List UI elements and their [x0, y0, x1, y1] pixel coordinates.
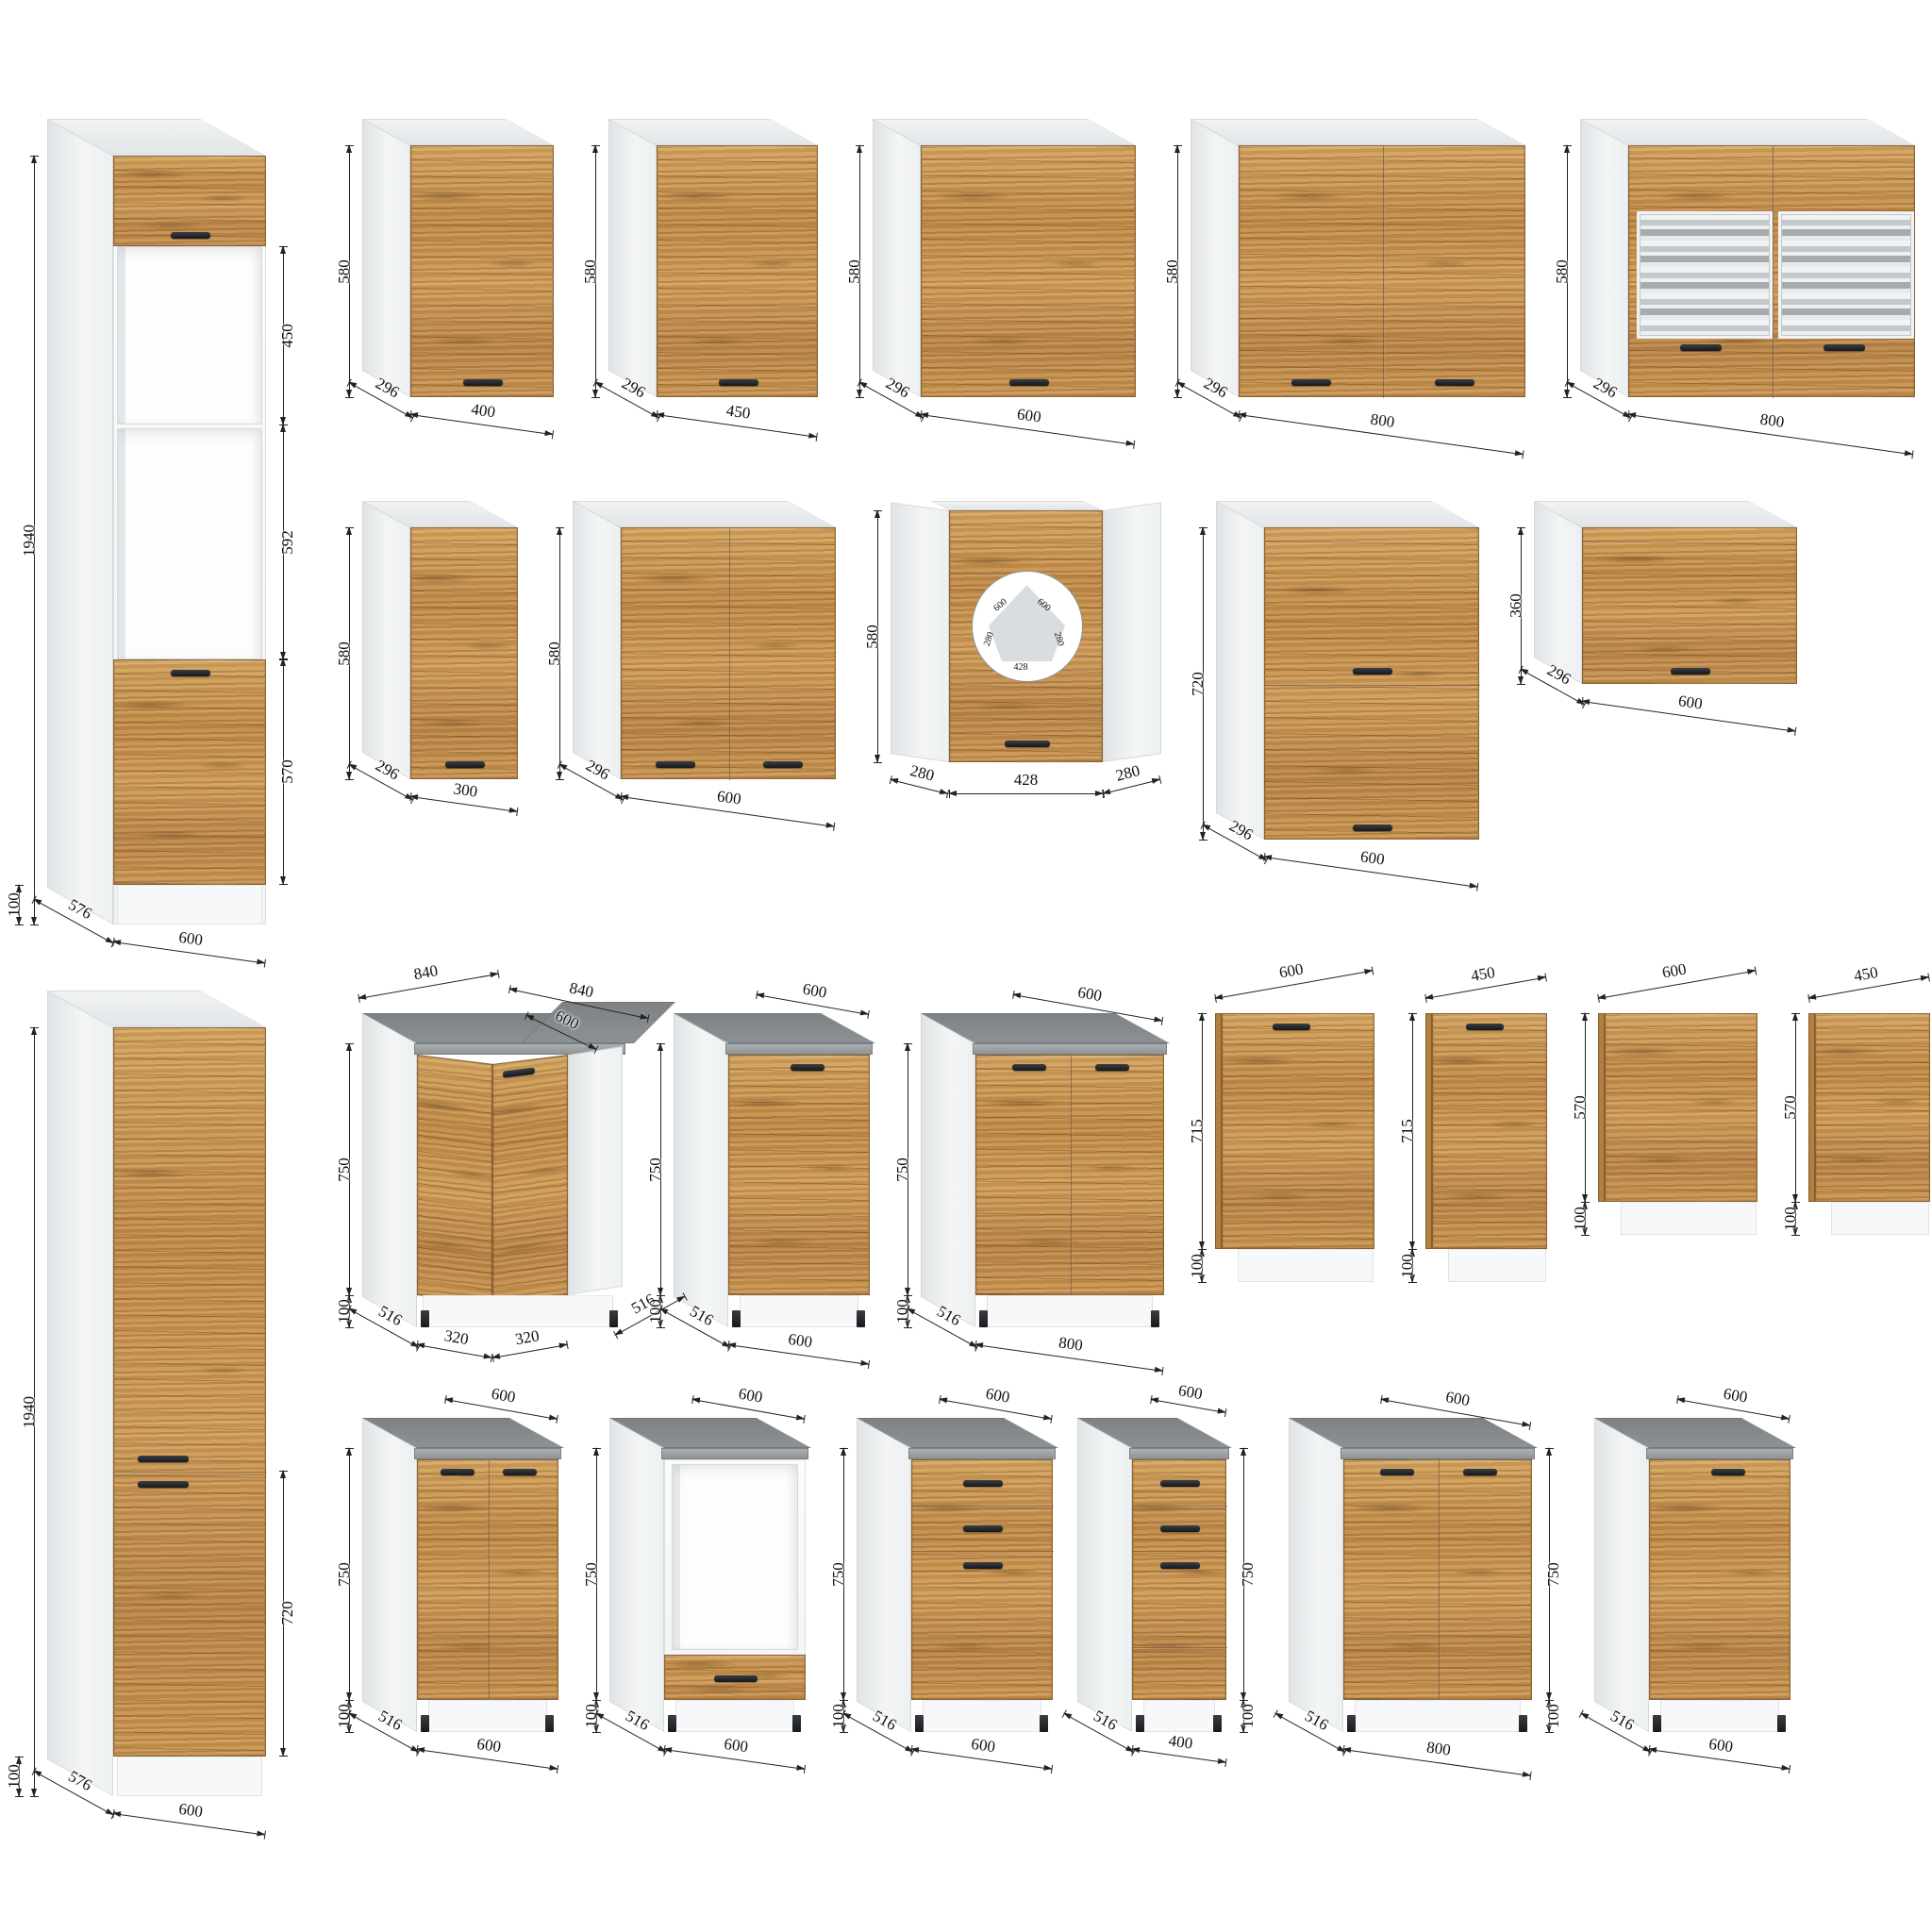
dimension-label: 600: [970, 1735, 996, 1757]
dimension-label: 100: [5, 892, 24, 917]
base-cabinet-600-two-door: 750100600600516: [325, 1388, 566, 1785]
cabinet-foot: [421, 1715, 429, 1732]
tick: [1563, 145, 1572, 146]
countertop-edge: [661, 1448, 808, 1459]
dimension: 600: [113, 1813, 264, 1835]
wall-units-section: 1940100450592570600576580400296580450296…: [9, 111, 1932, 977]
tick: [1794, 727, 1796, 736]
dimension-label: 580: [545, 641, 564, 666]
tick: [1545, 1700, 1554, 1701]
dimension-label: 600: [1076, 983, 1104, 1006]
dimension-label: 400: [1167, 1731, 1193, 1753]
tick: [1174, 397, 1182, 398]
dimension: 600: [1582, 701, 1795, 731]
tick: [1788, 1415, 1790, 1424]
dimension-label: 715: [1398, 1119, 1417, 1143]
dimension-label: 592: [278, 530, 297, 555]
base-cabinet-800-two-door: 750100800600516: [883, 983, 1172, 1380]
dimension-label: 400: [470, 400, 496, 422]
dimension: 600: [728, 1344, 869, 1364]
dimension-label: 450: [278, 324, 297, 348]
cabinet-side: [857, 1418, 911, 1732]
panel-front: [1432, 1013, 1547, 1249]
tick: [1240, 1448, 1248, 1449]
cabinet-side: [573, 501, 621, 779]
door-handle: [1160, 1525, 1200, 1532]
corner-side-right: [1103, 502, 1161, 762]
dimension-label: 320: [443, 1326, 471, 1349]
plinth: [987, 1295, 1153, 1327]
dimension-label: 580: [581, 259, 600, 284]
corner-door-right: [492, 1055, 568, 1305]
dimension: 600: [921, 414, 1134, 444]
oven-niche: [672, 1464, 798, 1650]
glass-pane: [1778, 211, 1914, 339]
tick: [803, 1415, 806, 1424]
dimension: 600: [1677, 1399, 1789, 1419]
tick: [552, 430, 554, 439]
dimension-label: 600: [787, 1330, 813, 1352]
tick: [1517, 684, 1525, 685]
wall-cabinet-600-two-door: 580600296: [535, 493, 843, 832]
oven-drawer: [664, 1655, 806, 1700]
dimension-label: 580: [1553, 259, 1572, 284]
door-handle: [656, 761, 695, 768]
base-oven-housing-600: 750100600600516: [572, 1388, 813, 1785]
tick: [840, 1732, 848, 1733]
dimension: 600: [621, 796, 834, 826]
cabinet-foot: [668, 1715, 676, 1732]
door-handle: [963, 1562, 1003, 1569]
tick: [345, 779, 354, 780]
tick: [30, 1027, 39, 1028]
tick: [657, 1043, 665, 1044]
tick: [1199, 840, 1207, 841]
tick: [1198, 1013, 1207, 1014]
cabinet-front: [728, 1055, 870, 1295]
tick: [1791, 1202, 1800, 1203]
tick: [30, 924, 39, 925]
drawer-gap: [912, 1551, 1054, 1553]
door-handle: [138, 1481, 189, 1488]
dimension-label: 600: [723, 1735, 749, 1757]
cabinet-front: [410, 145, 554, 397]
cabinet-foot: [609, 1310, 618, 1327]
dimension-label: 840: [568, 978, 595, 1002]
dimension-label: 100: [1781, 1207, 1800, 1231]
base-cabinet-600: 750100600600516: [636, 983, 877, 1380]
wall-cabinet-400: 580400296: [325, 111, 561, 450]
tick: [949, 790, 950, 798]
tick: [30, 156, 39, 157]
door-handle: [1012, 1064, 1046, 1071]
tick: [345, 397, 354, 398]
tick: [516, 808, 518, 816]
cabinet-front: [1582, 527, 1797, 684]
tick: [591, 145, 600, 146]
tick: [1545, 1448, 1554, 1449]
dimension-label: 800: [1369, 410, 1395, 432]
wall-flap-cabinet-600-360: 360600296: [1496, 493, 1805, 737]
dimension: 600: [1151, 1399, 1225, 1412]
dimension-label: 100: [1239, 1704, 1257, 1728]
door-handle: [963, 1525, 1003, 1532]
dimension-label: 570: [1781, 1095, 1800, 1120]
drawer-gap: [1133, 1551, 1227, 1553]
tick: [1174, 145, 1182, 146]
plinth: [428, 1700, 547, 1732]
corner-side-left: [891, 502, 949, 762]
dimension-label: 600: [1359, 847, 1386, 869]
cabinet-top: [1580, 119, 1915, 145]
cabinet-row: 7501003203208408406005165167501006006005…: [325, 983, 1932, 1380]
cabinet-side: [921, 1013, 975, 1327]
tick: [1581, 1013, 1590, 1014]
tick: [1789, 1765, 1790, 1774]
dimension-label: 750: [335, 1158, 354, 1182]
door-handle: [1160, 1562, 1200, 1569]
cabinet-side: [1580, 119, 1628, 397]
dimension-label: 750: [893, 1158, 912, 1182]
tick: [30, 1796, 39, 1797]
panel-front: [1815, 1013, 1930, 1202]
tick: [345, 1327, 354, 1328]
wall-cabinet-450: 580450296: [571, 111, 825, 450]
cabinet-side: [674, 1013, 728, 1327]
dimension: 600: [1264, 857, 1477, 887]
countertop-edge: [1129, 1448, 1229, 1459]
cabinet-front: [1649, 1459, 1790, 1700]
door-handle: [1005, 741, 1050, 747]
door-handle: [503, 1067, 535, 1077]
tick: [592, 1732, 601, 1733]
tick: [345, 527, 354, 528]
cabinet-side: [1289, 1418, 1343, 1732]
plinth: [117, 885, 262, 924]
drawer-gap: [1133, 1506, 1227, 1507]
cabinet-row: 5804002965804502965806002965808002965808…: [325, 111, 1923, 450]
oven-niche-lower: [117, 428, 262, 659]
dimension-label: 800: [1758, 410, 1785, 432]
countertop-edge: [973, 1043, 1167, 1055]
corner-door-left: [417, 1055, 492, 1305]
dimension: 320: [492, 1344, 567, 1357]
door-handle: [171, 670, 210, 676]
tick: [279, 1471, 288, 1472]
dimension-label: 600: [1677, 691, 1704, 713]
dimension-label: 580: [335, 259, 354, 284]
dimension-label: 750: [582, 1562, 601, 1587]
tick: [904, 1295, 912, 1296]
dimension-label: 360: [1507, 593, 1525, 618]
dimension: 800: [1343, 1749, 1530, 1775]
dimension: 400: [1132, 1749, 1225, 1762]
end-panel-450-570: 570100450: [1771, 983, 1932, 1288]
tick: [1161, 1017, 1164, 1025]
dimension-label: 750: [1544, 1562, 1563, 1587]
tick: [1051, 1765, 1053, 1774]
door-handle: [1463, 1469, 1497, 1475]
cabinet-foot: [1347, 1715, 1356, 1732]
tick: [592, 1448, 601, 1449]
cabinet-front: [657, 145, 818, 397]
dimension-label: 100: [1398, 1254, 1417, 1278]
dimension-label: 715: [1188, 1119, 1207, 1143]
door-handle: [1291, 379, 1331, 386]
plinth: [1660, 1700, 1779, 1732]
tick: [1476, 883, 1478, 891]
cabinet-foot: [545, 1715, 554, 1732]
cabinet-front: [975, 1055, 1164, 1295]
tick: [1133, 441, 1135, 449]
rows-column: 5804002965804502965806002965808002965808…: [325, 111, 1923, 892]
wall-cabinet-800-glass: 580800296: [1542, 111, 1923, 450]
tick: [345, 145, 354, 146]
tick: [15, 1757, 24, 1757]
door-handle: [714, 1675, 758, 1682]
tick: [1791, 1013, 1800, 1014]
tick: [279, 425, 288, 425]
panel-front: [1605, 1013, 1757, 1202]
tick: [1199, 527, 1207, 528]
corner-side-right: [568, 1046, 623, 1295]
cabinet-foot: [1136, 1715, 1144, 1732]
dimension-label: 580: [863, 625, 882, 649]
cabinet-row: 7501006006005167501006006005167501006006…: [325, 1388, 1932, 1785]
countertop-edge: [414, 1448, 561, 1459]
dimension-label: 100: [1188, 1254, 1207, 1278]
dimension-label: 580: [335, 641, 354, 666]
tick: [556, 779, 564, 780]
cabinet-side: [1534, 501, 1582, 684]
tick: [592, 1700, 601, 1701]
drawer-stack-front: [911, 1459, 1053, 1700]
door-handle: [1009, 379, 1049, 386]
base-corner-cabinet-840: 750100320320840840600516516: [325, 983, 630, 1380]
tick: [1408, 1249, 1417, 1250]
door-handle: [791, 1064, 824, 1071]
tick: [833, 823, 835, 831]
dimension-label: 600: [177, 928, 204, 950]
tick: [1529, 1772, 1531, 1780]
dimension-label: 600: [716, 787, 742, 808]
tick: [279, 246, 288, 247]
wall-flap-cabinet-600-720: 720600296: [1178, 493, 1487, 892]
cabinet-foot: [1777, 1715, 1786, 1732]
dimension-label: 750: [1239, 1562, 1257, 1587]
dimension-label: 450: [1470, 963, 1497, 986]
tick: [1240, 1700, 1248, 1701]
tick: [1158, 775, 1161, 784]
cabinet-side: [362, 501, 410, 779]
tick: [1911, 450, 1913, 458]
dimension-label: 580: [845, 259, 864, 284]
cabinet-side: [47, 991, 113, 1796]
base-cabinet-600-door: 600600516: [1583, 1388, 1798, 1785]
cabinet-side: [609, 1418, 664, 1732]
plinth: [1143, 1700, 1215, 1732]
base-drawer-cabinet-600: 750100600600516: [819, 1388, 1060, 1785]
tick: [1522, 450, 1524, 458]
drawer-gap: [912, 1506, 1054, 1507]
door-handle: [1353, 824, 1392, 831]
tick: [1563, 397, 1572, 398]
dimension-label: 570: [1571, 1095, 1590, 1120]
tick: [1198, 1282, 1207, 1283]
dimension-label: 570: [278, 759, 297, 784]
door-handle: [719, 379, 758, 386]
plan-dimension-label: 280: [981, 630, 995, 647]
tick: [566, 1341, 569, 1349]
cabinet-side: [362, 1418, 417, 1732]
dimension-label: 600: [1016, 405, 1042, 426]
tick: [1240, 1732, 1248, 1733]
cabinet-foot: [792, 1715, 801, 1732]
drawer-gap: [1265, 685, 1480, 687]
dimension: 450: [1425, 977, 1545, 998]
tick: [15, 924, 24, 925]
dimension: 600: [1649, 1749, 1790, 1769]
tick: [1408, 1282, 1417, 1283]
cabinet-row: 5803002965806002966006002802804285802804…: [325, 493, 1923, 892]
tick: [1408, 1013, 1417, 1014]
dimension: 600: [664, 1749, 805, 1769]
cabinet-foot: [1519, 1715, 1527, 1732]
tick: [904, 1043, 912, 1044]
cabinet-side: [1077, 1418, 1132, 1732]
drawer-stack-front: [1132, 1459, 1226, 1700]
cabinet-front: [1343, 1459, 1532, 1700]
tick: [657, 1327, 665, 1328]
dimension-label: 600: [1444, 1388, 1472, 1410]
dimension-label: 450: [725, 401, 752, 423]
tick: [904, 1327, 912, 1328]
door-handle: [1160, 1480, 1200, 1487]
wall-corner-cabinet-428: 600600280280428580280428280: [853, 493, 1169, 815]
corner-plan-shape: [986, 583, 1069, 666]
door-gap: [729, 528, 731, 780]
drawer-gap: [1133, 1647, 1227, 1649]
tick: [657, 1295, 665, 1296]
dimension: 600: [113, 941, 264, 963]
dimension-label: 600: [1177, 1381, 1205, 1404]
dimension-label: 600: [1707, 1735, 1734, 1757]
panel-edge: [1425, 1013, 1432, 1249]
cabinet-foot: [979, 1310, 988, 1327]
dimension-label: 720: [278, 1601, 297, 1625]
tick: [1224, 1758, 1226, 1767]
corner-plan-inset: 600600280280428: [972, 571, 1083, 682]
door-gap: [1071, 1056, 1073, 1296]
dimension-label: 100: [1571, 1207, 1590, 1231]
tick: [840, 1448, 848, 1449]
dimension-label: 800: [1058, 1333, 1084, 1355]
door-handle: [1380, 1469, 1414, 1475]
base-units-section: 1940100720600576750100320320840840600516…: [9, 983, 1932, 1849]
cabinet-side: [362, 1013, 417, 1327]
tick: [874, 762, 882, 763]
door-handle: [441, 1469, 475, 1475]
cabinet-front: [921, 145, 1136, 397]
cabinet-foot: [1213, 1715, 1222, 1732]
dimension-label: 600: [475, 1735, 502, 1757]
tick: [856, 145, 864, 146]
cabinet-front: [113, 1027, 266, 1757]
cabinet-side: [1216, 501, 1264, 840]
dimension-label: 600: [1660, 959, 1688, 982]
end-panel-450-715: 715100450: [1388, 983, 1555, 1335]
door-handle: [503, 1469, 537, 1475]
dimension-label: 450: [1853, 963, 1880, 986]
door-handle: [1671, 668, 1710, 675]
door-handle: [763, 761, 803, 768]
dimension-label: 600: [1722, 1385, 1749, 1407]
door-gap: [489, 1460, 491, 1701]
dimension-label: 600: [984, 1385, 1011, 1407]
dimension-label: 600: [490, 1385, 517, 1407]
dimension-label: 750: [646, 1158, 665, 1182]
door-gap: [1773, 146, 1774, 398]
door-handle: [171, 232, 210, 239]
dimension: 800: [975, 1344, 1162, 1371]
tick: [556, 527, 564, 528]
dimension: 280: [891, 779, 947, 793]
door-handle: [445, 761, 485, 768]
door-gap: [1439, 1460, 1441, 1701]
countertop-edge: [1646, 1448, 1793, 1459]
tick: [1517, 527, 1525, 528]
panel-edge: [1215, 1013, 1222, 1249]
dimension-label: 1940: [20, 525, 39, 557]
dimension: 600: [692, 1399, 804, 1419]
tick: [264, 1831, 266, 1840]
cabinet-foot: [1040, 1715, 1048, 1732]
tick: [557, 1765, 558, 1774]
dimension-label: 600: [177, 1800, 204, 1822]
tick: [279, 884, 288, 885]
tall-oven-housing-600: 1940100450592570600576: [9, 111, 311, 977]
door-handle: [1680, 344, 1722, 351]
dimension: 600: [940, 1399, 1051, 1419]
door-handle: [1273, 1024, 1310, 1030]
lower-door: [113, 659, 266, 885]
plinth-behind: [1448, 1249, 1546, 1282]
cabinet-front: [1264, 527, 1479, 840]
cabinet-foot: [1151, 1310, 1159, 1327]
tick: [1050, 1415, 1053, 1424]
tick: [874, 510, 882, 511]
door-gap: [1383, 146, 1385, 398]
wall-cabinet-600: 580600296: [835, 111, 1143, 450]
tick: [840, 1700, 848, 1701]
panel-front: [1222, 1013, 1374, 1249]
dimension-label: 428: [1014, 771, 1039, 790]
tick: [1224, 1408, 1227, 1417]
tick: [345, 1043, 354, 1044]
tick: [868, 1360, 870, 1369]
tick: [1791, 1235, 1800, 1236]
door-handle: [1824, 344, 1865, 351]
dimension: 600: [757, 994, 868, 1014]
wall-cabinet-300: 580300296: [325, 493, 525, 832]
dimension: 600: [417, 1749, 558, 1769]
end-panel-600-570: 570100600: [1560, 983, 1765, 1288]
countertop-edge: [725, 1043, 873, 1055]
dimension: 280: [1103, 779, 1159, 793]
dimension-label: 750: [335, 1562, 354, 1587]
tick: [867, 1010, 870, 1019]
dimension-label: 600: [737, 1385, 764, 1407]
